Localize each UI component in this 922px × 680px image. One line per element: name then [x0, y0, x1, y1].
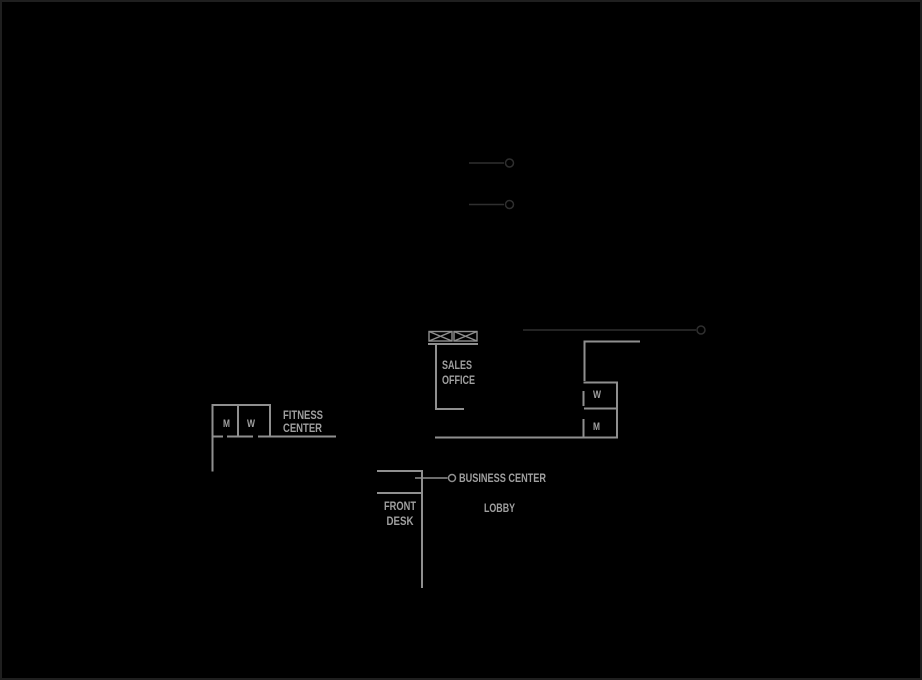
callout-circle-icon [506, 201, 514, 209]
front-desk-label-line2: DESK [387, 514, 414, 528]
lobby-restroom-women-label: W [593, 389, 601, 401]
callout-circle-icon [697, 326, 705, 334]
fitness-center-label-line1: FITNESS [283, 408, 323, 422]
callout-marker-top-2 [469, 201, 514, 209]
lobby-label: LOBBY [484, 501, 515, 515]
lobby-restrooms-walls [584, 342, 641, 439]
callout-circle-icon [449, 475, 456, 482]
floor-plan-page: SALES OFFICE FITNESS CENTER M W W M BUSI… [0, 0, 922, 680]
sales-office-casework-icon [428, 332, 478, 345]
floor-plan-canvas: SALES OFFICE FITNESS CENTER M W W M BUSI… [0, 0, 922, 680]
front-desk-walls [377, 470, 422, 588]
callout-marker-long [523, 326, 705, 334]
sales-office-label-line1: SALES [442, 358, 472, 372]
fitness-restroom-women-label: W [247, 418, 255, 430]
business-center-label: BUSINESS CENTER [459, 471, 546, 485]
sales-office-label-line2: OFFICE [442, 373, 475, 387]
callout-marker-top-1 [469, 159, 514, 167]
front-desk-label-line1: FRONT [384, 499, 417, 513]
fitness-center-label-line2: CENTER [283, 421, 322, 435]
lobby-restroom-men-label: M [593, 421, 600, 433]
wall-segment [585, 342, 641, 382]
callout-circle-icon [506, 159, 514, 167]
fitness-restroom-men-label: M [223, 418, 230, 430]
